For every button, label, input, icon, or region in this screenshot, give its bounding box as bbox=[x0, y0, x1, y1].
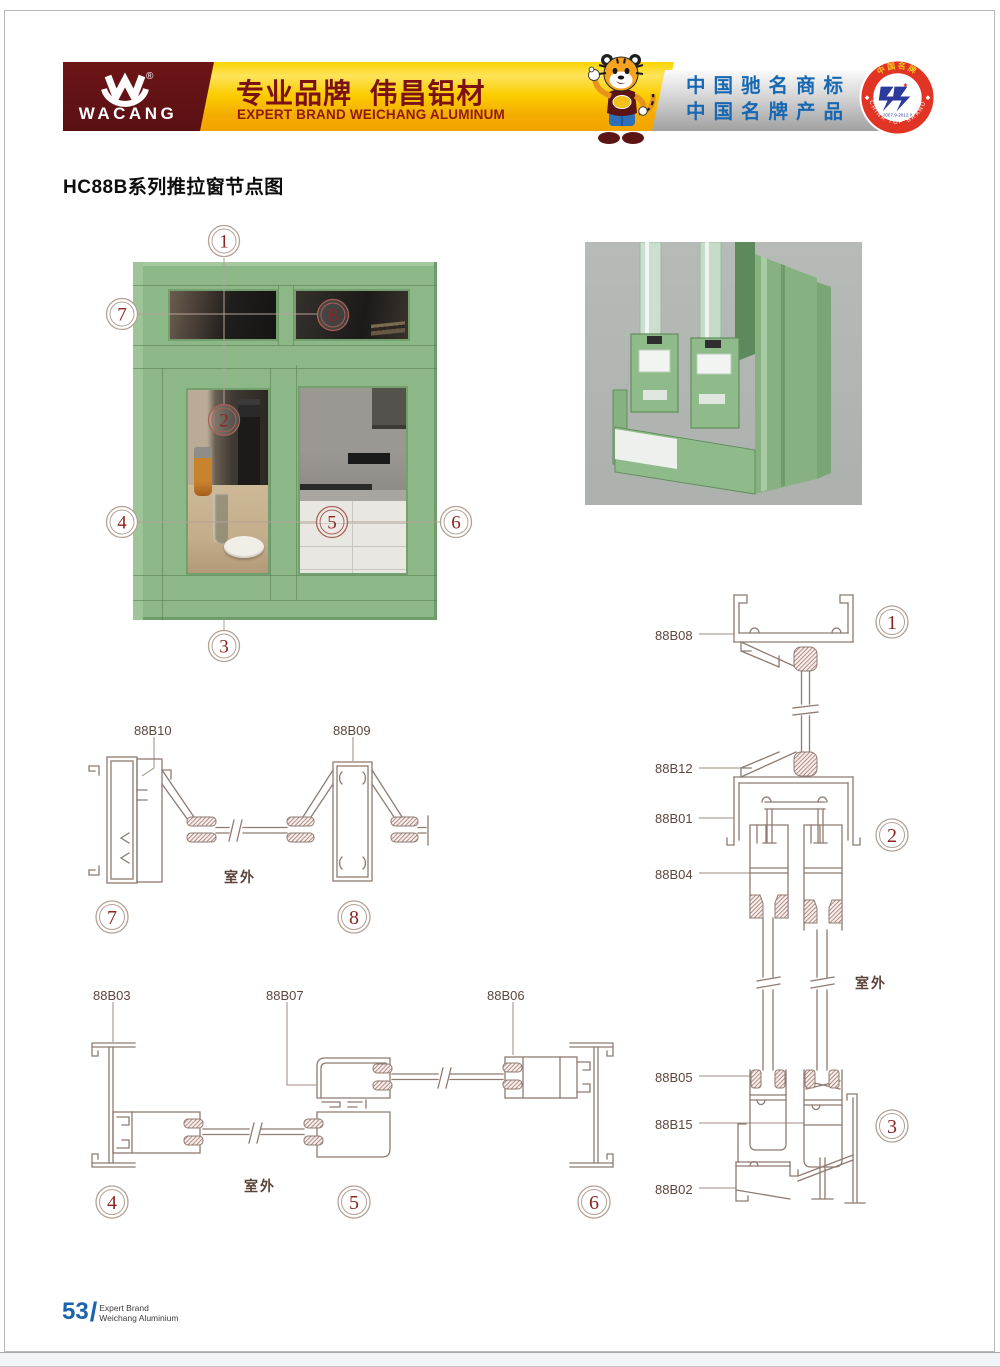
honor-text: 中国驰名商标 中国名牌产品 bbox=[686, 73, 851, 125]
page-title: HC88B系列推拉窗节点图 bbox=[63, 172, 284, 199]
slogan-chinese: 专业品牌 伟昌铝材 bbox=[236, 72, 486, 112]
bracket-88B12 bbox=[741, 752, 796, 777]
part-label: 88B15 bbox=[655, 1117, 693, 1132]
outdoor-label: 室外 bbox=[244, 1178, 276, 1194]
photo-callout-6: 6 bbox=[441, 507, 472, 538]
sash-profile-88B06 bbox=[505, 1043, 613, 1167]
section-drawing-vertical: 88B08 88B12 88B01 88B04 88B05 88B15 88B0… bbox=[648, 592, 910, 1214]
section-circle-8: 8 bbox=[338, 901, 370, 933]
photo-callout-8: 8 bbox=[318, 300, 349, 331]
page-number-slash: / bbox=[90, 1301, 98, 1324]
profile-3d-render bbox=[585, 242, 862, 505]
photo-callout-5: 5 bbox=[317, 507, 348, 538]
glass-line bbox=[216, 820, 287, 841]
photo-callout-7: 7 bbox=[107, 299, 138, 330]
section-circle-6: 6 bbox=[578, 1186, 610, 1218]
photo-callout-4: 4 bbox=[107, 507, 138, 538]
section-circle-1: 1 bbox=[876, 606, 908, 638]
page-bottom-strip bbox=[0, 1352, 1000, 1367]
part-label: 88B05 bbox=[655, 1070, 693, 1085]
section-circle-2: 2 bbox=[876, 819, 908, 851]
section-drawing-top: 88B10 88B09 室外 7 8 bbox=[78, 712, 450, 944]
svg-text:5: 5 bbox=[327, 513, 337, 534]
footer: 53 / Expert Brand Weichang Aluminium bbox=[62, 1301, 178, 1324]
part-label: 88B10 bbox=[134, 723, 172, 738]
photo-callout-2: 2 bbox=[209, 405, 240, 436]
section-circle-3: 3 bbox=[876, 1110, 908, 1142]
honor-line2: 中国名牌产品 bbox=[686, 99, 851, 125]
profile-3d-render-graphic bbox=[585, 242, 862, 505]
honor-line1: 中国驰名商标 bbox=[686, 73, 851, 99]
photo-callout-1: 1 bbox=[209, 226, 240, 257]
tiger-mascot-icon bbox=[581, 50, 663, 145]
outdoor-label: 室外 bbox=[224, 869, 256, 885]
section-circle-4: 4 bbox=[96, 1186, 128, 1218]
svg-text:7: 7 bbox=[117, 305, 127, 326]
part-label: 88B08 bbox=[655, 628, 693, 643]
svg-text:5: 5 bbox=[349, 1192, 359, 1214]
section-circle-7: 7 bbox=[96, 901, 128, 933]
sill-profile-88B02 bbox=[736, 1094, 865, 1203]
mullion-profile-88B09 bbox=[301, 762, 404, 881]
part-label: 88B06 bbox=[487, 988, 525, 1003]
glass-line bbox=[793, 671, 818, 751]
svg-text:6: 6 bbox=[589, 1192, 599, 1214]
svg-text:1: 1 bbox=[219, 232, 229, 253]
part-label: 88B02 bbox=[655, 1182, 693, 1197]
part-label: 88B01 bbox=[655, 811, 693, 826]
part-label: 88B09 bbox=[333, 723, 371, 738]
svg-text:7: 7 bbox=[107, 907, 117, 929]
section-drawing-bottom: 88B03 88B07 88B06 室外 bbox=[86, 984, 614, 1220]
svg-text:8: 8 bbox=[328, 306, 338, 327]
frame-profile-88B03 bbox=[92, 1043, 200, 1167]
section-circle-5: 5 bbox=[338, 1186, 370, 1218]
svg-text:8: 8 bbox=[349, 907, 359, 929]
svg-text:4: 4 bbox=[107, 1192, 117, 1214]
sash-bottom-88B05 bbox=[750, 1070, 842, 1167]
svg-text:4: 4 bbox=[117, 513, 127, 534]
slogan-english: EXPERT BRAND WEICHANG ALUMINUM bbox=[237, 107, 505, 122]
svg-text:1: 1 bbox=[887, 612, 897, 634]
footer-brand-lines: Expert Brand Weichang Aluminium bbox=[99, 1301, 178, 1323]
mid-frame-88B01 bbox=[727, 777, 860, 845]
outdoor-label: 室外 bbox=[855, 975, 887, 991]
svg-text:2: 2 bbox=[219, 411, 229, 432]
footer-line2: Weichang Aluminium bbox=[99, 1314, 178, 1324]
svg-text:6: 6 bbox=[451, 513, 461, 534]
svg-text:2: 2 bbox=[887, 825, 897, 847]
glass-line bbox=[203, 1123, 304, 1143]
brand-name: WACANG bbox=[78, 104, 178, 124]
registered-mark: ® bbox=[146, 71, 154, 82]
part-label: 88B03 bbox=[93, 988, 131, 1003]
page-number: 53 bbox=[62, 1301, 89, 1323]
svg-text:3: 3 bbox=[887, 1116, 897, 1138]
photo-callout-3: 3 bbox=[209, 631, 240, 662]
svg-text:3: 3 bbox=[219, 637, 229, 658]
glass-line bbox=[757, 918, 834, 1070]
glass-line bbox=[418, 816, 428, 845]
photo-callouts: 1 7 8 2 4 5 6 3 bbox=[95, 222, 475, 672]
sash-top-88B04 bbox=[750, 825, 842, 930]
part-label: 88B07 bbox=[266, 988, 304, 1003]
part-label: 88B04 bbox=[655, 867, 693, 882]
part-label: 88B12 bbox=[655, 761, 693, 776]
china-top-brand-badge-icon: 2007.9-2012.9 中国名牌 CHINA TOP BRAND bbox=[858, 58, 937, 137]
badge-years: 2007.9-2012.9 bbox=[883, 112, 913, 117]
glass-line bbox=[392, 1068, 503, 1088]
